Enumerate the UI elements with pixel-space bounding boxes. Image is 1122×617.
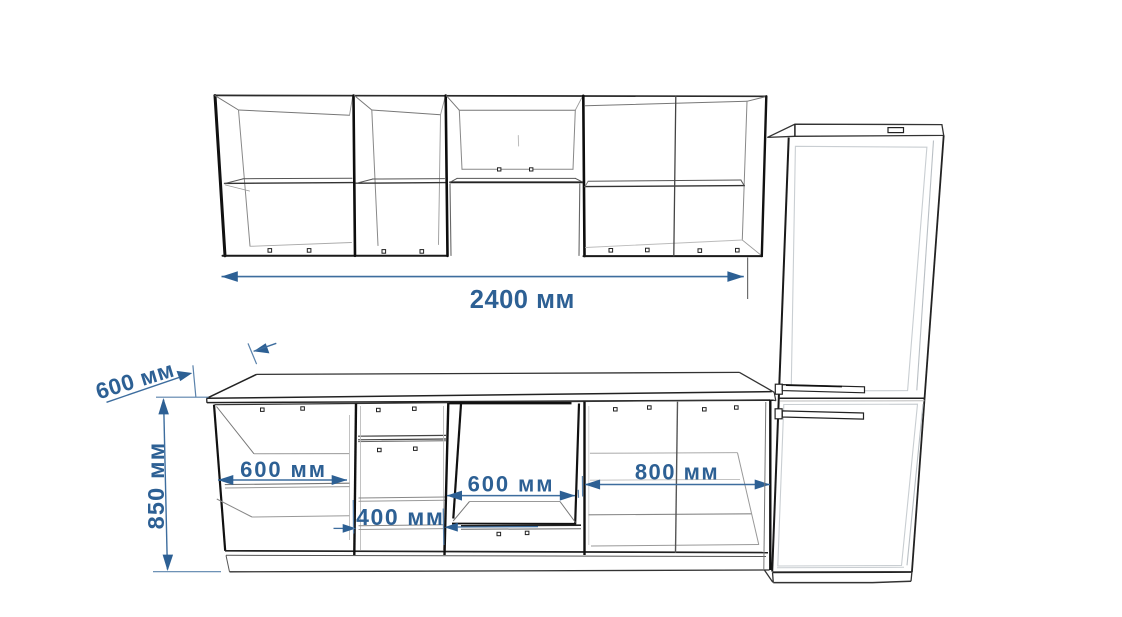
svg-text:800 мм: 800 мм (635, 460, 719, 485)
svg-text:400 мм: 400 мм (356, 504, 444, 530)
svg-text:850 мм: 850 мм (143, 442, 169, 530)
svg-text:2400 мм: 2400 мм (470, 286, 575, 314)
svg-text:600 мм: 600 мм (468, 472, 555, 497)
svg-text:600 мм: 600 мм (240, 457, 327, 482)
